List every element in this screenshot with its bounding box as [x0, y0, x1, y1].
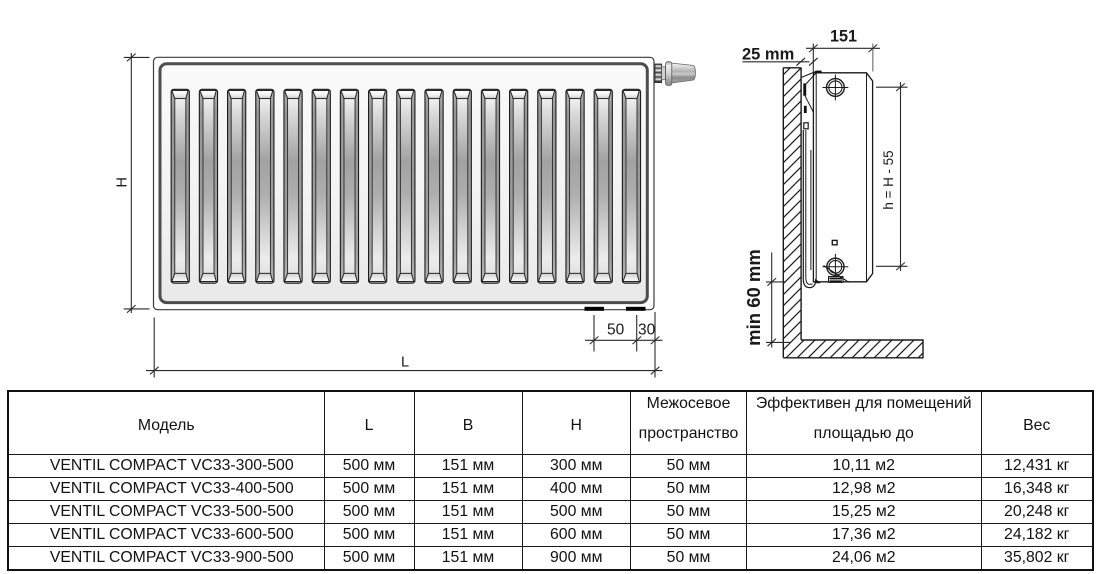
svg-text:30: 30 [638, 322, 656, 339]
svg-text:min 60 mm: min 60 mm [743, 249, 764, 346]
svg-text:h = H - 55: h = H - 55 [881, 150, 896, 209]
svg-text:50: 50 [607, 322, 625, 339]
svg-text:L: L [401, 355, 409, 371]
svg-text:151: 151 [830, 28, 857, 46]
svg-text:25 mm: 25 mm [742, 45, 794, 63]
svg-text:H: H [115, 177, 131, 187]
